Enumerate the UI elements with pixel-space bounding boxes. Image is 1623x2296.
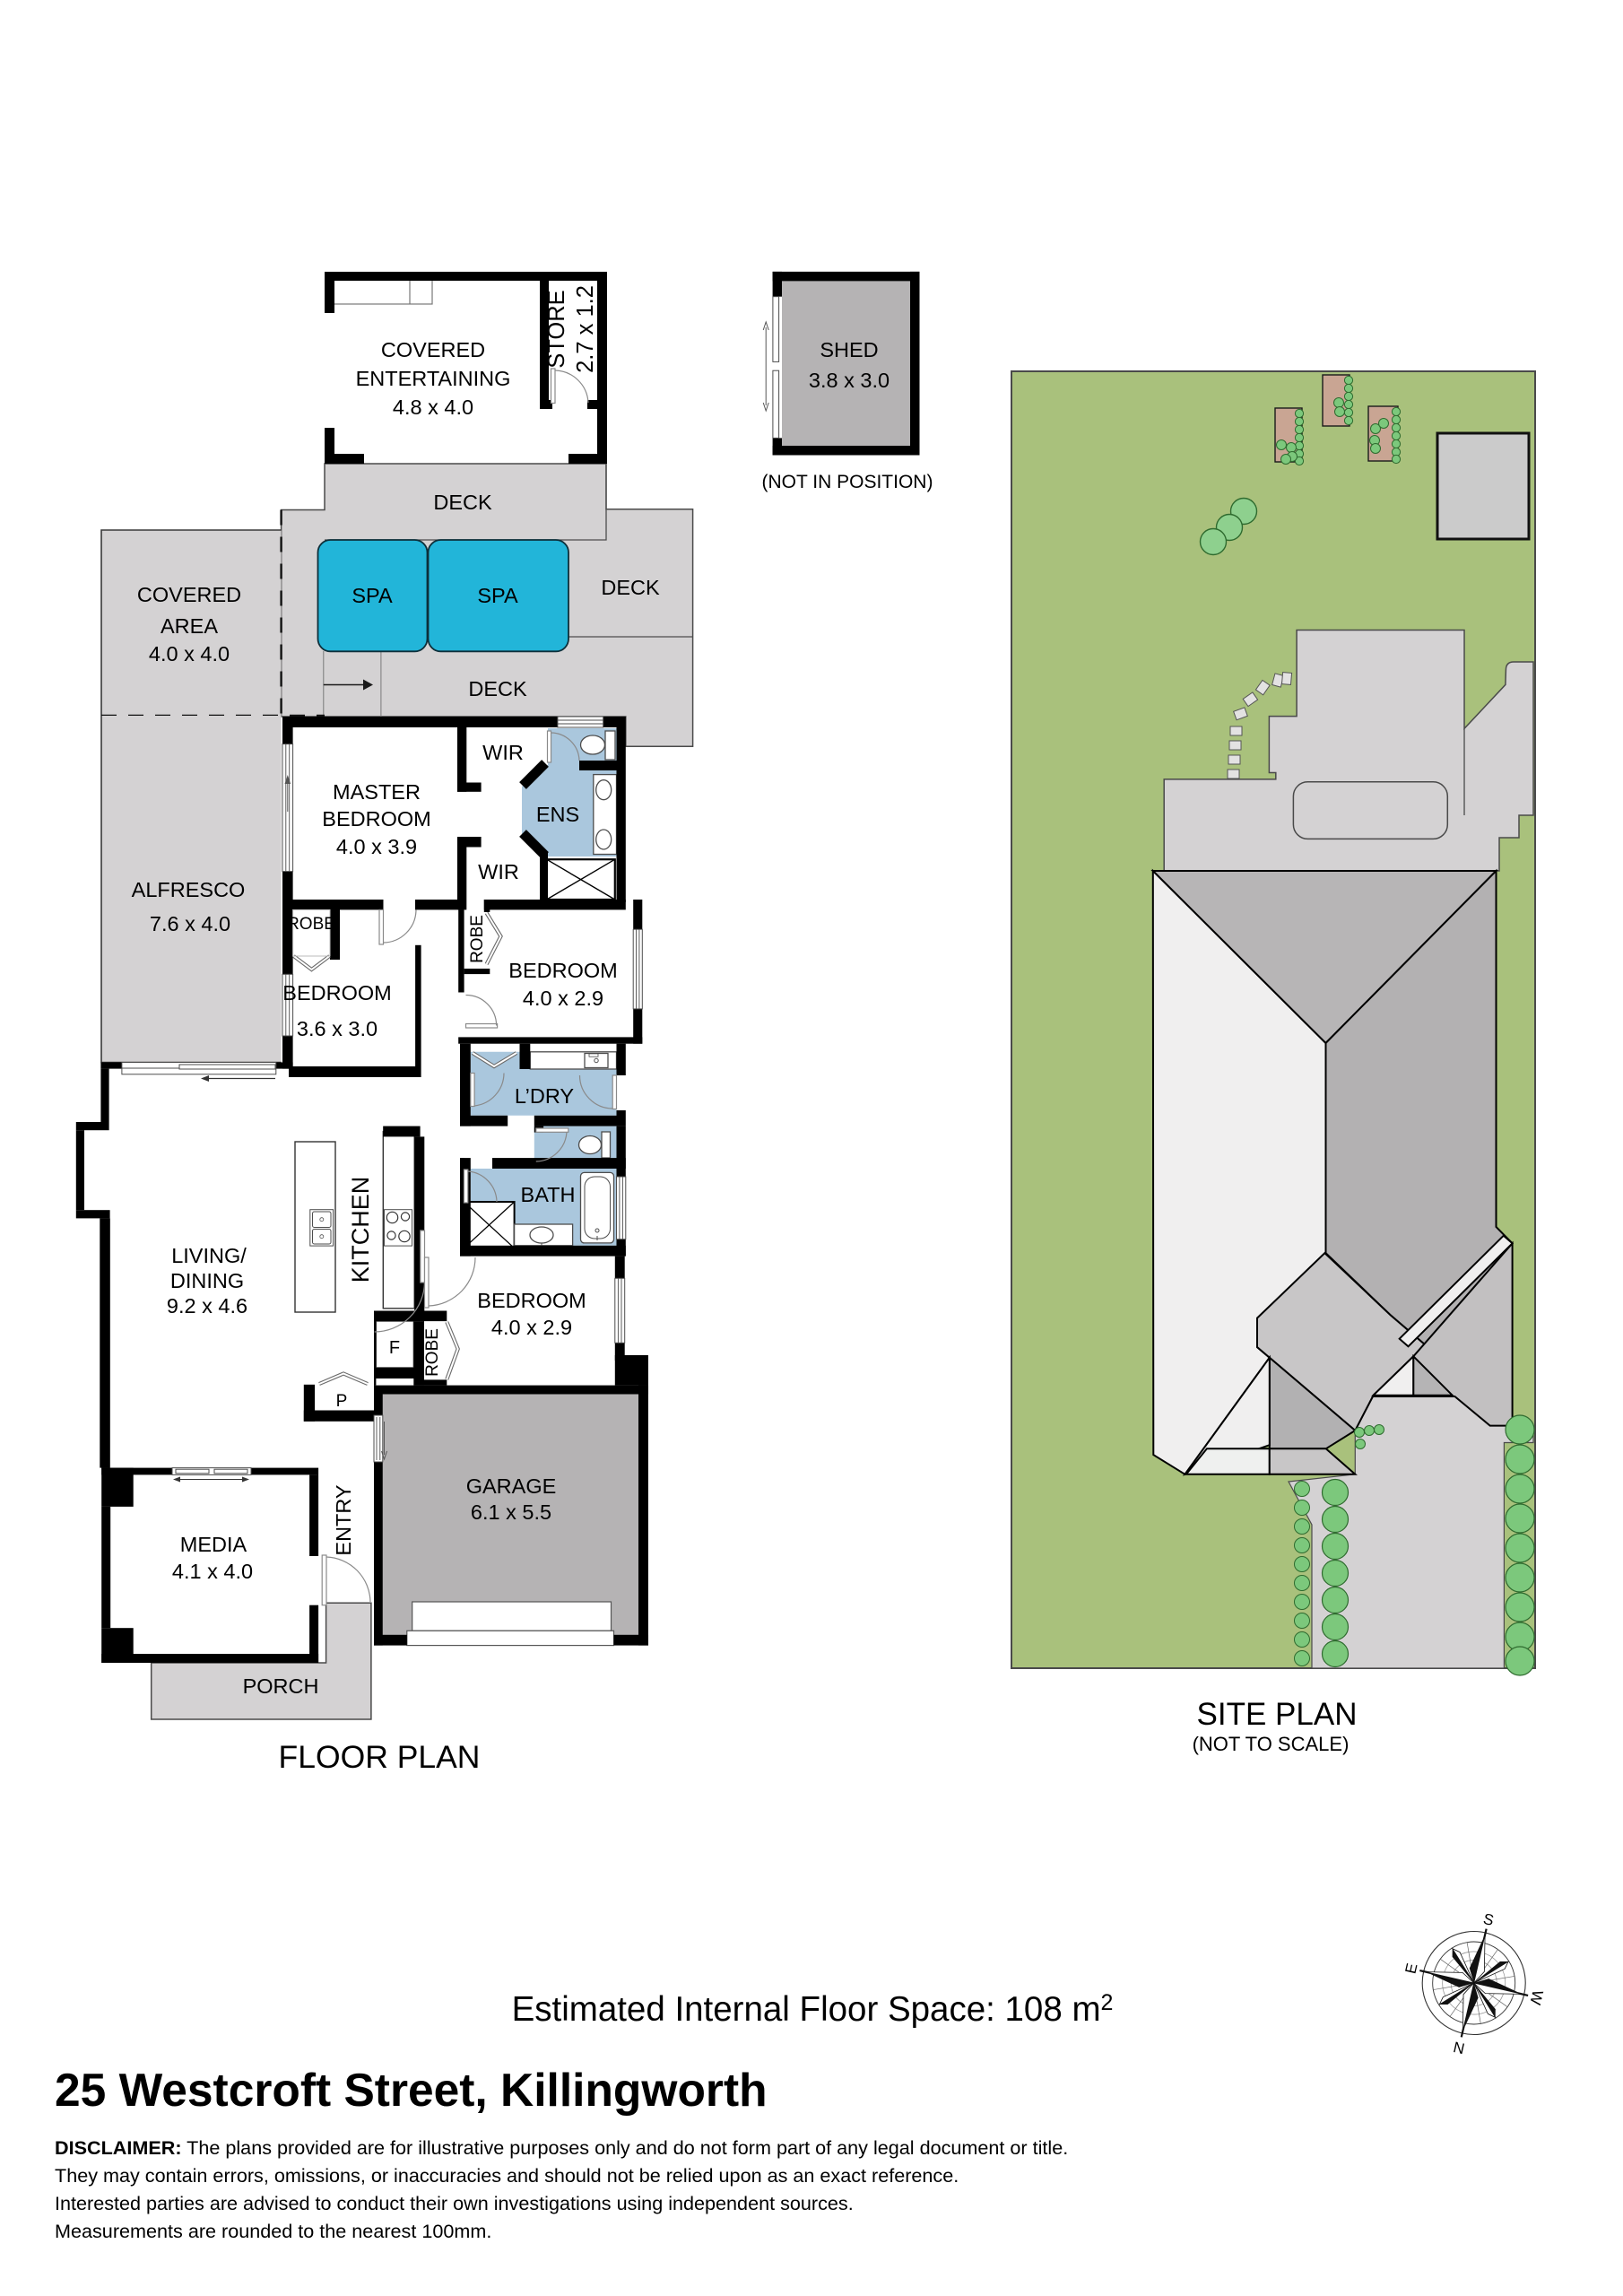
- svg-text:4.0 x 2.9: 4.0 x 2.9: [491, 1316, 572, 1339]
- svg-text:LIVING/: LIVING/: [171, 1244, 247, 1267]
- svg-text:FLOOR PLAN: FLOOR PLAN: [279, 1739, 481, 1775]
- svg-text:DINING: DINING: [170, 1269, 244, 1292]
- svg-text:DECK: DECK: [468, 677, 527, 700]
- svg-text:Measurements are rounded to th: Measurements are rounded to the nearest …: [55, 2220, 491, 2242]
- svg-text:MASTER: MASTER: [333, 780, 421, 804]
- svg-text:25 Westcroft Street, Killingwo: 25 Westcroft Street, Killingworth: [55, 2064, 768, 2116]
- svg-text:COVERED: COVERED: [137, 583, 241, 606]
- svg-text:BEDROOM: BEDROOM: [322, 807, 430, 831]
- svg-text:ENS: ENS: [536, 803, 579, 826]
- svg-text:MEDIA: MEDIA: [180, 1533, 247, 1556]
- svg-text:DECK: DECK: [433, 491, 492, 514]
- svg-text:SHED: SHED: [820, 338, 878, 361]
- svg-text:ENTERTAINING: ENTERTAINING: [356, 367, 511, 390]
- svg-text:STORE: STORE: [544, 290, 569, 368]
- svg-text:SPA: SPA: [352, 584, 393, 607]
- svg-text:6.1 x 5.5: 6.1 x 5.5: [471, 1500, 551, 1524]
- svg-text:BATH: BATH: [521, 1183, 576, 1206]
- svg-text:DECK: DECK: [601, 576, 660, 599]
- svg-text:4.8 x 4.0: 4.8 x 4.0: [393, 396, 473, 419]
- svg-text:(NOT IN POSITION): (NOT IN POSITION): [762, 472, 933, 492]
- svg-text:4.1 x 4.0: 4.1 x 4.0: [172, 1560, 253, 1583]
- svg-text:ENTRY: ENTRY: [332, 1484, 355, 1556]
- svg-text:ROBE: ROBE: [468, 915, 487, 963]
- svg-text:AREA: AREA: [161, 614, 218, 638]
- svg-text:BEDROOM: BEDROOM: [282, 981, 391, 1004]
- svg-text:4.0 x 3.9: 4.0 x 3.9: [336, 835, 417, 858]
- svg-text:BEDROOM: BEDROOM: [508, 959, 617, 982]
- svg-text:COVERED: COVERED: [381, 338, 485, 361]
- svg-text:2.7 x 1.2: 2.7 x 1.2: [573, 285, 598, 373]
- svg-text:SPA: SPA: [477, 584, 518, 607]
- svg-text:P: P: [336, 1392, 348, 1411]
- svg-text:4.0 x 4.0: 4.0 x 4.0: [149, 642, 230, 665]
- svg-text:WIR: WIR: [478, 860, 519, 883]
- svg-text:GARAGE: GARAGE: [466, 1474, 557, 1498]
- svg-text:PORCH: PORCH: [243, 1674, 319, 1698]
- svg-text:DISCLAIMER: The plans provided: DISCLAIMER: The plans provided are for i…: [55, 2136, 1068, 2159]
- svg-text:Interested parties are advised: Interested parties are advised to conduc…: [55, 2192, 854, 2214]
- svg-text:They may contain errors, omiss: They may contain errors, omissions, or i…: [55, 2164, 959, 2187]
- svg-text:F: F: [389, 1338, 400, 1358]
- svg-text:SITE PLAN: SITE PLAN: [1197, 1697, 1358, 1732]
- svg-text:ROBE: ROBE: [287, 915, 335, 934]
- svg-text:Estimated Internal Floor Space: Estimated Internal Floor Space: 108 m2: [512, 1990, 1114, 2029]
- svg-text:9.2 x 4.6: 9.2 x 4.6: [167, 1294, 247, 1318]
- svg-text:L’DRY: L’DRY: [515, 1084, 575, 1108]
- svg-text:7.6 x 4.0: 7.6 x 4.0: [150, 912, 230, 935]
- svg-text:4.0 x 2.9: 4.0 x 2.9: [523, 987, 603, 1010]
- svg-text:WIR: WIR: [482, 741, 524, 764]
- svg-text:3.6 x 3.0: 3.6 x 3.0: [297, 1017, 378, 1040]
- svg-text:ALFRESCO: ALFRESCO: [132, 878, 246, 901]
- svg-text:3.8 x 3.0: 3.8 x 3.0: [809, 369, 890, 392]
- svg-text:ROBE: ROBE: [423, 1328, 442, 1377]
- svg-text:(NOT TO SCALE): (NOT TO SCALE): [1193, 1733, 1350, 1755]
- svg-text:KITCHEN: KITCHEN: [347, 1177, 374, 1283]
- svg-text:BEDROOM: BEDROOM: [477, 1289, 586, 1312]
